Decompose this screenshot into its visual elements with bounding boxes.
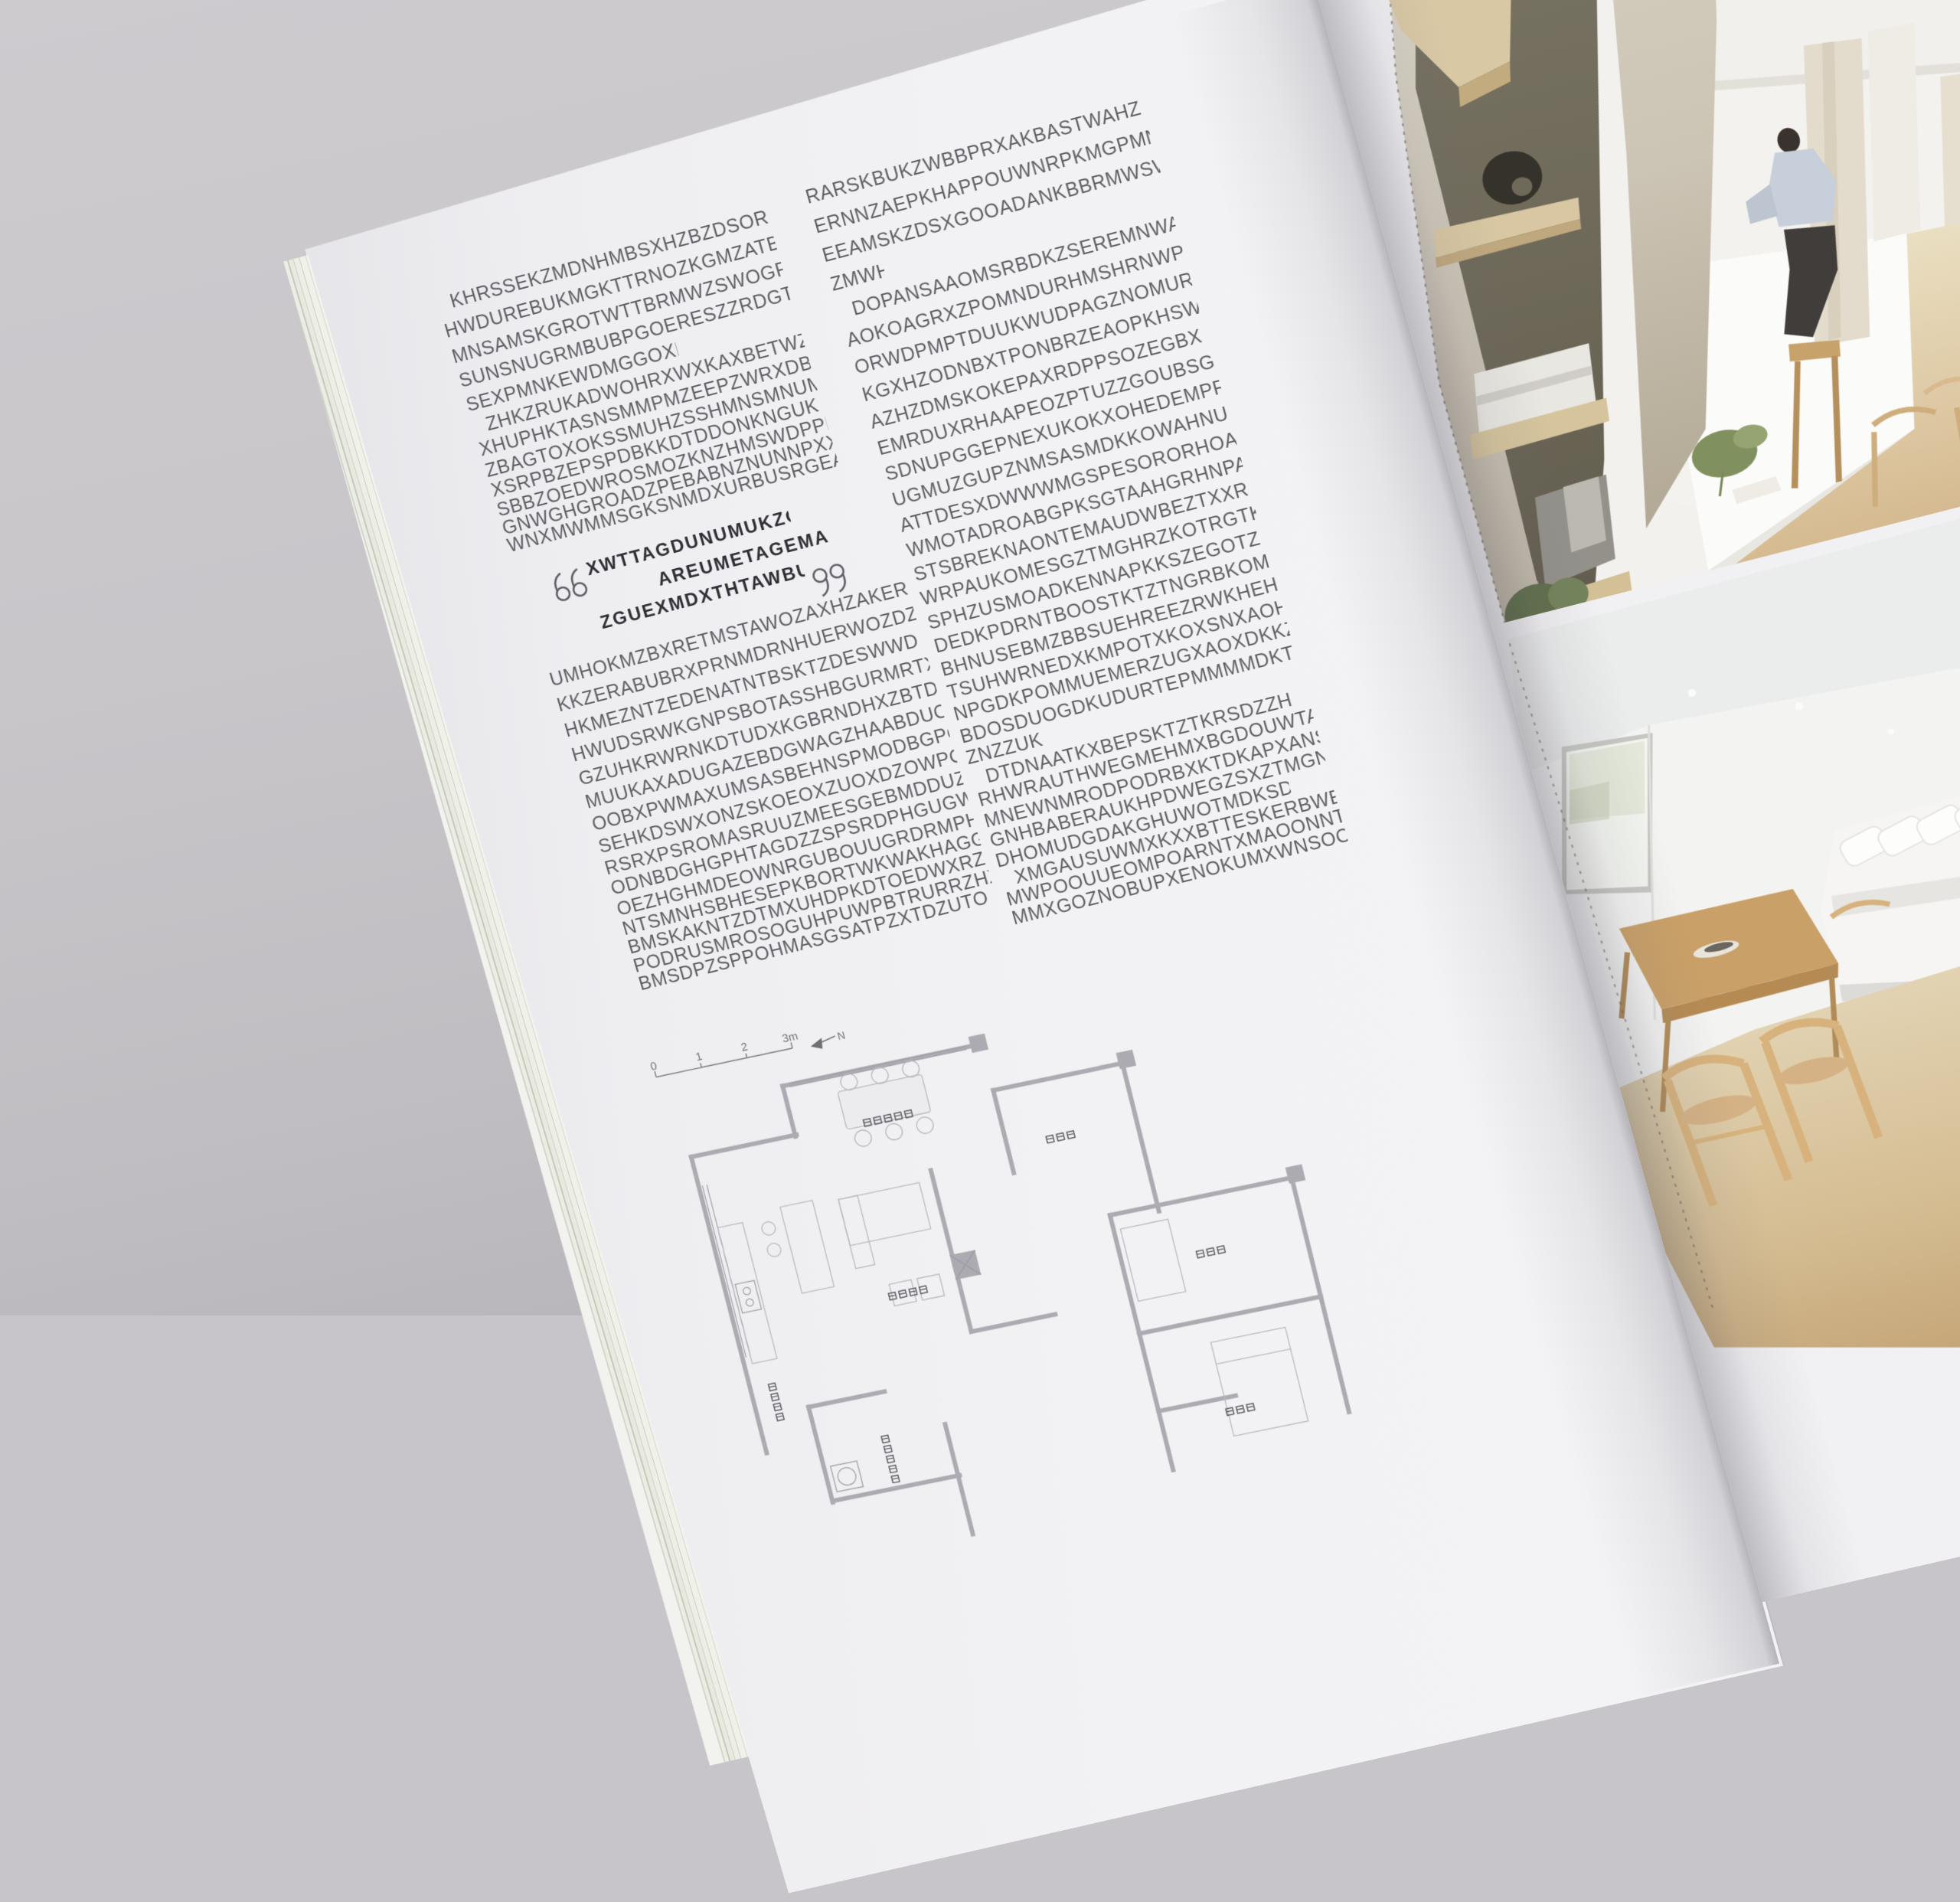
svg-text:0: 0	[649, 1060, 658, 1074]
svg-text:N: N	[836, 1029, 847, 1042]
svg-text:1: 1	[694, 1051, 704, 1064]
svg-text:3m: 3m	[781, 1031, 799, 1046]
svg-text:2: 2	[740, 1041, 749, 1054]
